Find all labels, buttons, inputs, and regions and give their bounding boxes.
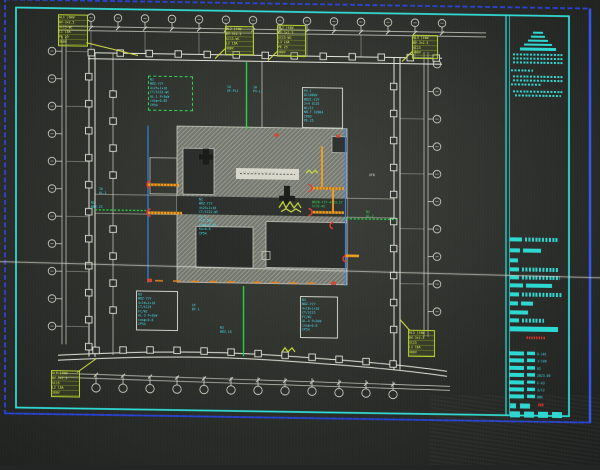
circuit-label: N1 WDZ-25 [91,201,114,218]
device-table-5: AL5 │4kW BV-3×2.5 SC15 L1 16A 380V [408,330,435,357]
title-block: ▮▮▮▮▮▮▮▮ G-101 1:100 A2 2023.06 E-03 3/1… [506,15,569,416]
annotation-text: N2 WDZ-YJY 4×25+1×16 CT/SC32-WC AL-2 P=2… [199,197,235,236]
annotation-box-top: PV-1 DC1000V WDZC-YJY 2×4 SC25 WC/CC NB-… [302,87,343,129]
circuit-label-green: WDZN-YJY-4×25-CT SC32-WC [312,200,374,218]
annotation-box-bottom-right: N4 WDZ-YJY 4×16+1×10 CT/SC25 FC/WC AL-4 … [300,296,338,339]
tb-field-values: G-101 1:100 A2 2023.06 E-03 3/12 DWG [537,351,600,402]
circuit-label: N3 WDZ-16 [220,326,243,343]
annotation-text: PV-1 DC1000V WDZC-YJY 2×4 SC25 WC/CC NB-… [304,89,341,123]
annotation-text: N3 WDZ-YJY 4×16+1×10 CT/SC25 FC/WC AL-3 … [138,292,176,326]
room-label: XFB [369,173,381,182]
center-room-label: · ·· · ··· · ·· · · [239,170,299,179]
axis-grid-left [48,36,88,345]
tb-review-stamp: ▮▮▮▮▮▮▮▮ [508,335,564,340]
circuit-label-green: N2 AL-2 [366,210,381,227]
device-table-4: AL4 │4kW BV-3×2.5 SC15 380V [412,35,438,59]
device-table-2: AL2 │4kW BV-3×2.5 SC15-WC L2 16A 380V [225,26,254,55]
annotation-box-green: N1 WDZ-YJY 4×25+1×16 CT/SC32-WC AL-1 P=3… [148,76,193,112]
annotation-box-bottom-left: N3 WDZ-YJY 4×16+1×10 CT/SC25 FC/WC AL-3 … [136,290,178,331]
annotation-text: N1 WDZ-YJY 4×25+1×16 CT/SC32-WC AL-1 P=3… [150,78,191,108]
device-table-1: AL1 │6kW BV-3×2.5 SC15-WC L1 16A PE 25 3… [58,14,88,46]
tb-field-labels [509,351,524,401]
axis-grid-right [400,52,441,338]
tb-stamp-bar [533,32,543,34]
device-table-3: AL3 │4kW BV-3×2.5 SC15-WC L3 16A PE 25 3… [277,25,306,57]
tb-field-mid [527,352,535,402]
cad-drawing-sheet: N1 WDZ-YJY 4×25+1×16 CT/SC32-WC AL-1 P=3… [0,0,600,470]
axis-grid-bottom [58,372,450,399]
tb-note-line [513,53,563,56]
tb-row [506,15,569,16]
circuit-label: 1A PV-L1 [253,85,272,102]
tb-red-cell: ▮▮▮ [538,403,568,407]
annotation-text: N4 WDZ-YJY 4×16+1×10 CT/SC25 FC/WC AL-4 … [302,298,336,332]
device-table-6: AL6 │4kW BV-3×2.5 SC15 L2 16A 380V [51,370,80,397]
annotation-center-note: N2 WDZ-YJY 4×25+1×16 CT/SC32-WC AL-2 P=2… [199,197,235,238]
circuit-label: 1A XF-PL1 [227,85,250,102]
circuit-label: XF BF-1 [192,303,207,320]
